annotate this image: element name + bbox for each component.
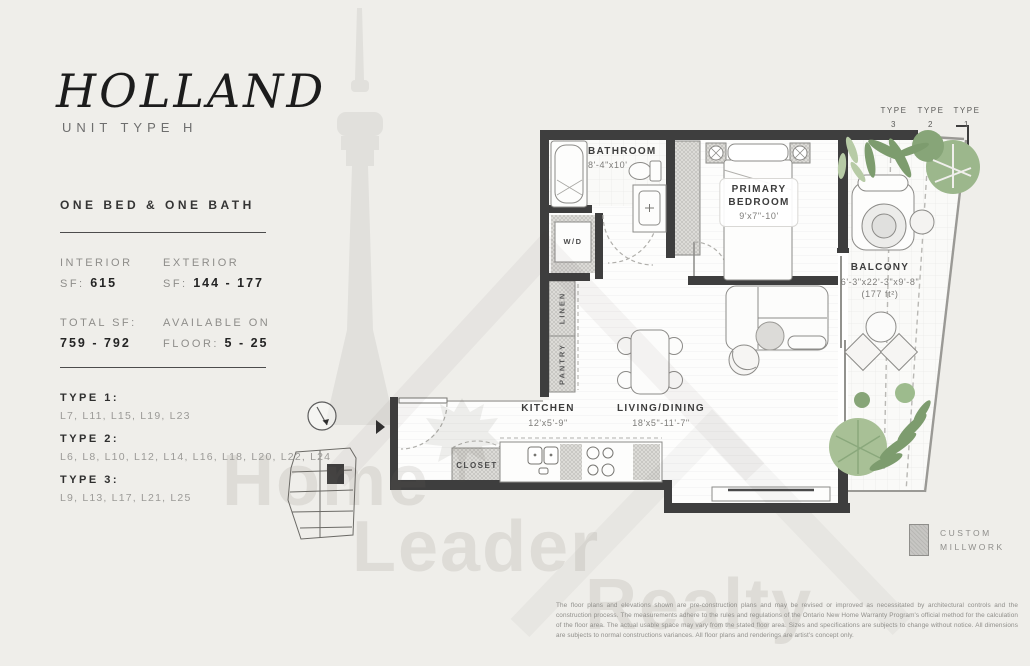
pantry-label: PANTRY xyxy=(558,343,567,385)
page-title: HOLLAND xyxy=(56,64,326,118)
bed-bath-summary: ONE BED & ONE BATH xyxy=(60,198,255,212)
millwork-swatch xyxy=(909,524,929,556)
divider-bottom xyxy=(60,367,266,368)
stat-interior: INTERIOR SF: 615 xyxy=(60,258,163,298)
type-1-floors: TYPE 1: L7, L11, L15, L19, L23 xyxy=(60,392,191,422)
disclaimer-text: The floor plans and elevations shown are… xyxy=(556,601,1018,641)
kitchen-label: KITCHEN 12'x5'-9" xyxy=(521,403,575,428)
millwork-legend: CUSTOM MILLWORK xyxy=(940,527,1005,554)
living-dining-label: LIVING/DINING 18'x5"-11'-7" xyxy=(617,403,705,428)
washer-dryer-label: W/D xyxy=(563,237,582,246)
closet-label: CLOSET xyxy=(456,461,497,470)
stat-total: TOTAL SF: 759 - 792 xyxy=(60,318,163,358)
type-marker-1: TYPE1 xyxy=(954,104,981,131)
type-marker-3: TYPE3 xyxy=(881,104,908,131)
stat-available: AVAILABLE ON FLOOR: 5 - 25 xyxy=(163,318,270,358)
balcony-label: BALCONY 6'-3"x22'-3"x9'-8" (177 ft²) xyxy=(841,262,920,299)
bedroom-label: PRIMARY BEDROOM 9'x7"-10' xyxy=(719,178,798,227)
stats-panel: INTERIOR SF: 615 EXTERIOR SF: 144 - 177 … xyxy=(60,258,290,374)
divider-top xyxy=(60,232,266,233)
unit-type: UNIT TYPE H xyxy=(62,120,197,135)
linen-label: LINEN xyxy=(558,292,567,325)
type-marker-2: TYPE2 xyxy=(918,104,945,131)
floorplan-brochure: { "accent_colors": {"wall": "#3e3e3e", "… xyxy=(0,0,1030,666)
type-3-floors: TYPE 3: L9, L13, L17, L21, L25 xyxy=(60,474,192,504)
type-2-floors: TYPE 2: L6, L8, L10, L12, L14, L16, L18,… xyxy=(60,433,331,463)
stat-exterior: EXTERIOR SF: 144 - 177 xyxy=(163,258,264,298)
bathroom-label: BATHROOM 8'-4"x10' xyxy=(588,146,657,170)
